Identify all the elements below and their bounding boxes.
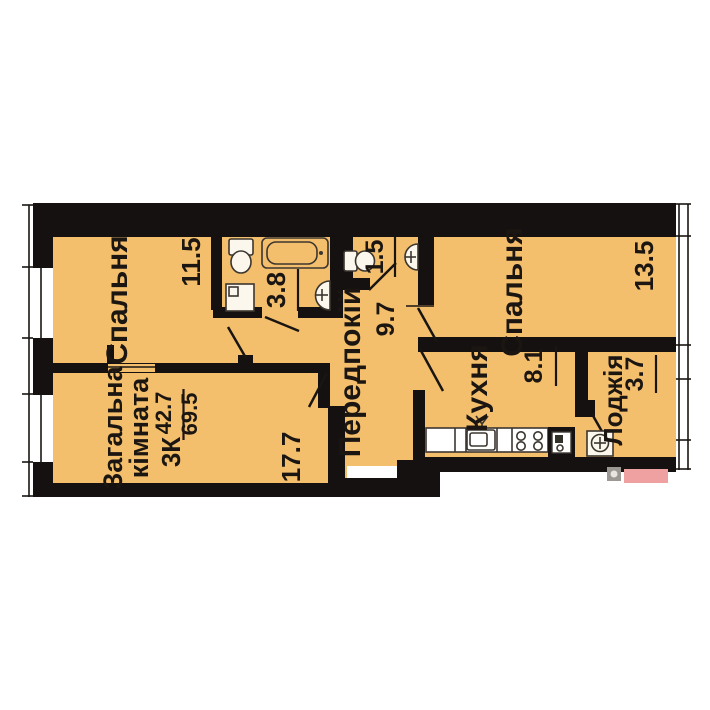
watermark-badge [607,467,668,483]
badge-dot [611,471,618,478]
wall-kitchen-left [413,390,425,463]
label-living-room-line2: кімната [124,377,154,479]
fridge-icon [548,427,575,457]
toilet-icon [229,239,253,273]
wall-hall-bedroom2 [418,235,434,305]
window-left-1 [30,268,53,338]
label-bedroom2: Спальня [496,227,529,357]
area-hallway: 9.7 [372,302,400,337]
glazing-right [676,204,691,470]
total-area: 69.5 [177,393,202,436]
washing-machine-icon [226,284,254,311]
area-bathroom: 3.8 [261,272,291,308]
living-area-total: 42.7 [151,392,176,435]
wall-bottom-living [33,483,342,497]
wall-top [33,203,676,237]
area-bedroom1: 11.5 [176,237,206,286]
label-hallway: Передпокій [334,287,367,458]
area-loggia: 3.7 [621,357,649,392]
area-kitchen: 8.1 [520,349,548,384]
area-wc: 1.5 [361,240,389,275]
window-left-2 [30,395,53,462]
apartment-type: 3К [156,437,186,467]
area-living-room: 17.7 [276,432,306,483]
floor-plan: Спальня 11.5 3.8 1.5 Передпокій 9.7 Спал… [0,0,710,710]
area-bedroom2: 13.5 [629,241,659,292]
wall-living-top [53,363,330,373]
entrance-door-opening [347,466,397,478]
label-kitchen: Кухня [461,344,494,432]
wall-kitchen-loggia [575,352,588,400]
floor-plan-page: Спальня 11.5 3.8 1.5 Передпокій 9.7 Спал… [0,0,710,710]
wall-bottom-hall [342,478,440,497]
label-bedroom1: Спальня [101,235,134,365]
wall-bedroom1-bath [211,235,222,310]
badge-pink [624,469,668,483]
